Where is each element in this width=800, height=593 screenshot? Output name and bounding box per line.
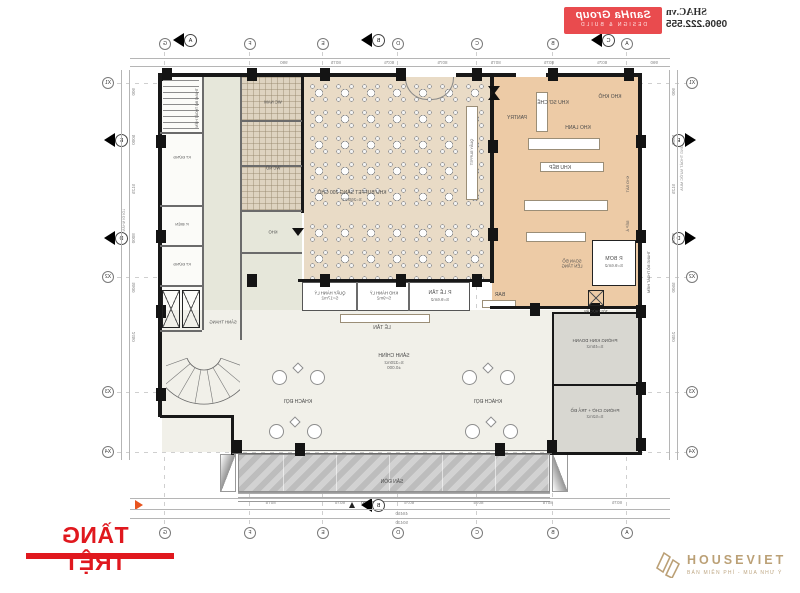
side-table: [289, 416, 300, 427]
partition: [160, 330, 202, 332]
wall-divider-kitchen: [490, 73, 494, 283]
grid-bubble-row: X4: [686, 446, 698, 458]
grid-bubble-col: D: [392, 527, 404, 539]
door-gap: [516, 73, 546, 77]
armchair: [462, 370, 477, 385]
wall-corridor-a: [241, 77, 243, 340]
grid-bubble-col: E: [317, 38, 329, 50]
side-table: [485, 416, 496, 427]
section-bubble: A: [184, 34, 197, 47]
wall-business-right: [552, 312, 554, 452]
armchair: [272, 370, 287, 385]
room-label-kt-dung: KT ĐỨNG: [173, 263, 191, 268]
elevator-shaft: [162, 290, 180, 328]
section-marker-e: E: [104, 133, 128, 147]
grid-bubble-col: B: [547, 38, 559, 50]
houseviet-tagline: BÁN MIỄN PHÍ - MUA NHƯ Ý: [687, 570, 786, 576]
room-label-p-bom: P. BƠMS=9.6m2: [605, 256, 623, 268]
room-label-thoat-hiem: THANG BỘ THOÁT HIỂM: [195, 88, 199, 127]
partition: [160, 132, 202, 134]
drawing-title: TẦNG TRỆT: [28, 522, 162, 576]
reception-desk: [340, 314, 430, 323]
room-label-phong-cho: PHÒNG CHỜ + TRẢ ĐỒS=52m2: [571, 408, 620, 420]
section-bubble: B: [372, 34, 385, 47]
room-label-khach-doi: KHÁCH ĐỢI: [284, 399, 312, 406]
armchair: [310, 370, 325, 385]
room-label-pantry: PANTRY: [507, 115, 527, 122]
floorplan-sheet: KHU BUFFET SÁNG 200 CHỖS=260m2 QUẦY BUFF…: [0, 0, 800, 593]
shac-contact: SHAC.vn 0906.222.555: [666, 7, 750, 30]
grid-bubble-col: G: [159, 38, 171, 50]
spiral-staircase: [166, 346, 240, 410]
grid-bubble-col: E: [317, 527, 329, 539]
grid-bubble-row: X3: [686, 386, 698, 398]
grid-bubble-row: X4: [102, 446, 114, 458]
grid-bubble-row: X3: [102, 386, 114, 398]
glass-front-a: [232, 450, 552, 451]
sofa-cluster: [464, 416, 518, 450]
room-label-khu-bep: KHU BẾP: [549, 165, 571, 172]
room-label-soan-do: SOẠN ĐỒ LÊN TẦNG: [558, 259, 586, 270]
dim-line: [669, 70, 670, 460]
room-label-kinh-doanh: PHÒNG KINH DOANHS=45m2: [573, 338, 618, 350]
section-marker-c: C: [591, 33, 615, 47]
wall-wcblock: [301, 73, 304, 213]
column-stamps: [624, 68, 634, 81]
dim-text-bottom-bays: 8075 8075 8075 8075 8075 8075: [266, 500, 622, 505]
room-label-banquet: KHU BUFFET SÁNG 200 CHỖS=260m2: [317, 190, 386, 202]
partition: [242, 252, 302, 254]
room-label-sanh-chinh: SẢNH CHÍNHS=320m2±0.000: [378, 353, 409, 371]
room-label-le-tan: LỄ TÂN: [373, 325, 390, 332]
grid-bubble-col: B: [547, 527, 559, 539]
section-arrow-icon: [361, 33, 372, 47]
partition: [357, 282, 359, 311]
armchair: [269, 424, 284, 439]
section-arrow-icon: [104, 133, 115, 147]
grid-bubble-col: C: [471, 38, 483, 50]
elevator-shaft: [182, 290, 200, 328]
wall-step-right-v: [231, 415, 234, 455]
grid-bubble-row: X1: [102, 77, 114, 89]
room-label-thang-toi: TỜI THỨC ĂN: [584, 310, 608, 315]
section-arrow-icon: [104, 231, 115, 245]
mirrored-drawing: KHU BUFFET SÁNG 200 CHỖS=260m2 QUẦY BUFF…: [0, 0, 800, 593]
kitchen-counter: [528, 138, 600, 150]
dim-line: [677, 70, 678, 460]
kitchen-counter: [526, 232, 586, 242]
pivot-symbol: [292, 228, 304, 242]
partition: [409, 282, 411, 311]
armchair: [500, 370, 515, 385]
grid-bubble-col: C: [471, 527, 483, 539]
side-table: [482, 362, 493, 373]
grid-bubble-row: X2: [102, 271, 114, 283]
armchair: [465, 424, 480, 439]
shac-phone: 0906.222.555: [666, 19, 750, 31]
partition: [160, 285, 202, 287]
annotation-ong-thoat: ỐNG THOÁT NƯỚC MƯA: [680, 145, 684, 190]
houseviet-name: HOUSEVIET: [687, 553, 786, 567]
room-label-san-don: SÂN ĐÓN: [381, 479, 404, 486]
reception-zone-floor: [202, 210, 302, 310]
room-label-kho: KHO: [268, 229, 277, 234]
armchair: [307, 424, 322, 439]
wc-block-floor: [242, 77, 302, 210]
wall-corridor-b: [203, 77, 205, 330]
wall-kitchen-bottom: [490, 306, 638, 309]
pivot-symbol: [488, 86, 500, 100]
grid-bubble-row: X2: [686, 271, 698, 283]
wall-top: [158, 73, 640, 77]
dim-line: [130, 498, 670, 499]
room-label-bar: BAR: [495, 292, 505, 299]
section-marker-d: D: [104, 231, 128, 245]
dim-text-top: 990 8075 8075 8075 8075 8075 8075 990: [280, 60, 658, 65]
dim-text-bottom-total: 50430: [395, 520, 408, 525]
room-label-thoat-hiem: THANG BỘ THOÁT HIỂM: [647, 251, 651, 293]
dim-text-left: 900 5000 5125 8000 5500 2450: [671, 88, 676, 342]
room-label-quay-hanh-ly: QUẦY HÀNH LÝS=17m2: [314, 290, 345, 301]
room-label-wc-nam: WC NAM: [264, 99, 281, 104]
wall-left: [638, 73, 642, 455]
dim-line: [130, 66, 670, 67]
wall-front-left: [550, 452, 642, 455]
room-label-kho-hanh-ly: KHO HÀNH LÝS=9m2: [370, 290, 398, 301]
kitchen-counter: [524, 200, 608, 211]
room-label-sanh-thang: SẢNH THANG: [209, 319, 236, 324]
houseviet-logo-icon: [655, 550, 681, 578]
room-label-bep-a: BẾP Á: [626, 220, 630, 231]
kitchen-counter: [536, 92, 548, 132]
dim-text-bottom-subtotal: 48450: [395, 511, 408, 516]
grid-bubble-col: F: [244, 527, 256, 539]
section-marker-a: A: [173, 33, 197, 47]
section-arrow-icon: [685, 133, 696, 147]
grid-bubble-col: A: [621, 527, 633, 539]
dim-text-right: 900 5000 5125 8000 5500 2450: [131, 88, 136, 342]
title-underline: [26, 553, 174, 559]
partition: [160, 205, 202, 207]
glass-front-b: [232, 453, 552, 454]
section-arrow-icon: [591, 33, 602, 47]
dim-line: [129, 70, 130, 460]
wall-step-right-h: [160, 415, 234, 418]
grid-bubble-col: D: [392, 38, 404, 50]
section-marker-b: B: [361, 33, 385, 47]
room-label-p-dien: P. ĐIỆN: [175, 223, 188, 228]
section-arrow-icon: [685, 231, 696, 245]
armchair: [503, 424, 518, 439]
shac-brand-name: SanHa Group: [564, 10, 662, 21]
room-label-kho-kho: KHO KHÔ: [598, 94, 621, 101]
room-label-khach-doi: KHÁCH ĐỢI: [474, 399, 502, 406]
terrace-side-right: [220, 454, 236, 492]
grid-bubble-col: A: [621, 38, 633, 50]
grid-bubble-col: F: [244, 38, 256, 50]
shac-brand-tagline: DESIGN & BUILD: [564, 23, 662, 28]
business-rooms-floor: [552, 312, 638, 452]
sofa-cluster: [271, 362, 325, 396]
shac-logo: SanHa Group DESIGN & BUILD: [564, 7, 662, 34]
shac-website: SHAC.vn: [666, 7, 750, 19]
room-label-so-che: KHU SƠ CHẾ: [537, 100, 569, 107]
partition: [160, 245, 202, 247]
room-label-kho-lanh: KHO LẠNH: [565, 125, 591, 132]
grid-bubble-row: X1: [686, 77, 698, 89]
entrance-terrace: [238, 454, 550, 492]
room-label-buffet-counter: QUẦY BUFFET: [470, 139, 474, 166]
room-label-kt-dung: KT ĐỨNG: [173, 156, 191, 161]
section-arrow-icon: [173, 33, 184, 47]
room-label-kho-bat: KHO BÁT: [626, 176, 630, 193]
dumbwaiter-shaft: [588, 290, 604, 306]
fire-stairs: [163, 80, 199, 130]
sofa-cluster: [461, 362, 515, 396]
terrace-side-left: [552, 454, 568, 492]
section-bubble: C: [602, 34, 615, 47]
banquet-tables-lower: [308, 220, 488, 280]
partition: [242, 210, 302, 212]
side-table: [292, 362, 303, 373]
wall-business-mid: [552, 384, 638, 386]
dim-line: [121, 70, 122, 460]
houseviet-watermark: HOUSEVIET BÁN MIỄN PHÍ - MUA NHƯ Ý: [655, 540, 795, 588]
room-label-wc-nu: WC NỮ: [266, 165, 281, 170]
partition: [242, 120, 302, 122]
room-label-p-le-tan: P. LỄ TÂNS=9.6m2: [429, 290, 452, 302]
sofa-cluster: [268, 416, 322, 450]
